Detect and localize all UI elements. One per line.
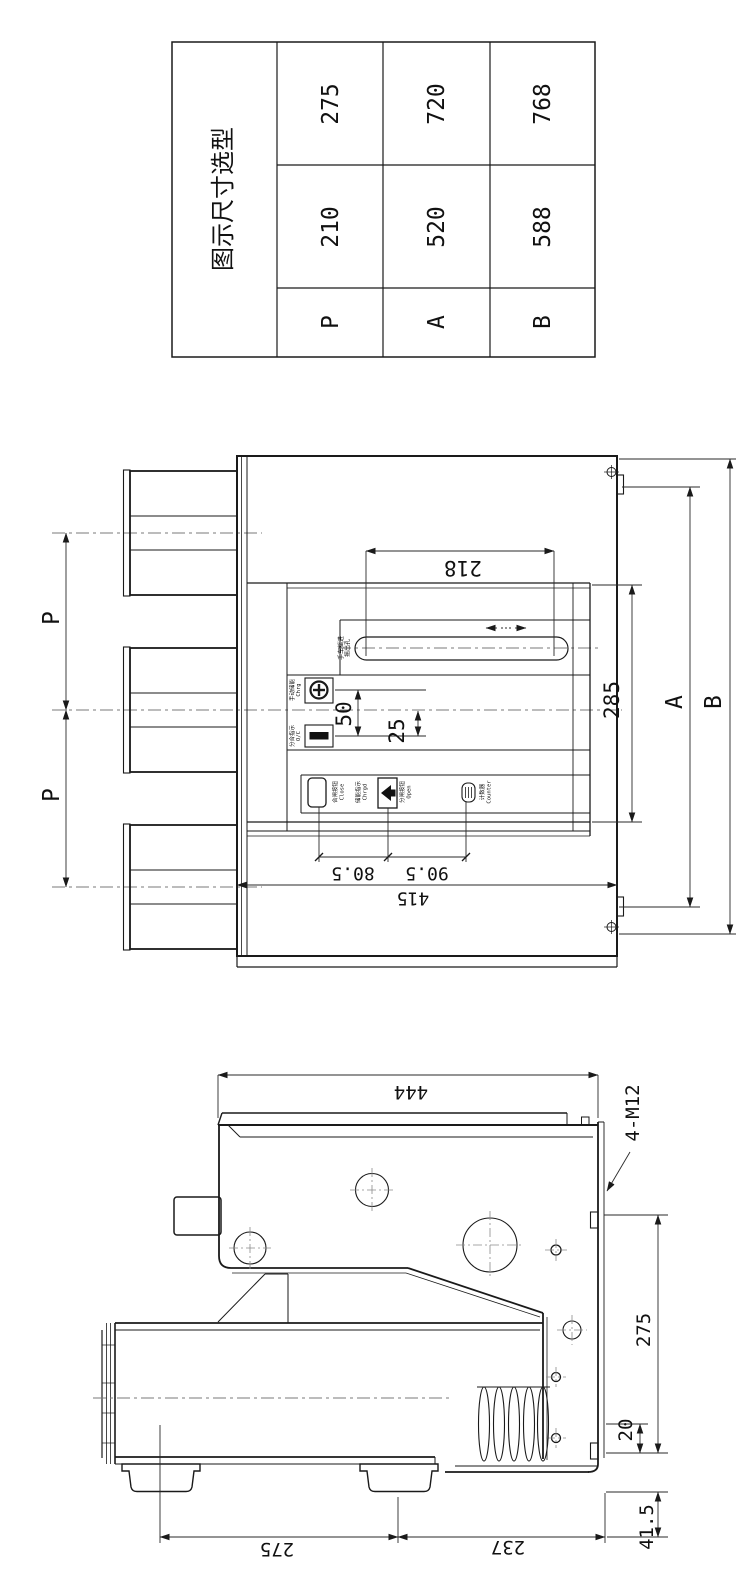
dimension-selection-table: 图示尺寸选型 275 720 768 210 520 588 P A B	[172, 42, 595, 357]
charged-label-line2: Chrgd	[363, 784, 369, 801]
mounting-plate	[445, 1117, 604, 1472]
table-cell: 588	[530, 206, 556, 248]
table-cell: 768	[530, 83, 556, 125]
table-cell: 520	[424, 206, 450, 248]
close-button	[308, 778, 326, 807]
dim-90-5: 90.5	[405, 863, 448, 884]
table-cell: P	[318, 315, 344, 329]
table-cell: A	[424, 315, 450, 329]
charge-label-line2: Chrg	[296, 683, 302, 696]
hole-left	[229, 1227, 271, 1269]
dim-41-5: 41.5	[636, 1504, 658, 1550]
hole-top	[350, 1168, 394, 1212]
bolt-hole-2	[546, 1367, 566, 1387]
side-view-dimensions: 444 4-M12 275 20 41.5 275 237	[160, 1075, 668, 1560]
table-cell: 275	[318, 83, 344, 125]
dim-285: 285	[600, 681, 624, 719]
open-btn-label-line1: 分闸按钮	[398, 781, 406, 804]
dim-218: 218	[444, 556, 482, 580]
dim-a: A	[662, 695, 688, 709]
drawing-canvas: 图示尺寸选型 275 720 768 210 520 588 P A B	[0, 0, 748, 1589]
close-btn-label-line2: Close	[340, 784, 346, 801]
counter-label-line1: 计数器	[478, 783, 486, 800]
close-btn-label-line1: 合闸按钮	[331, 781, 339, 804]
dim-50: 50	[332, 701, 356, 726]
dim-237: 237	[491, 1536, 525, 1558]
counter-label-line2: Counter	[487, 780, 493, 804]
interlock-block	[174, 1197, 221, 1235]
dim-b: B	[701, 695, 727, 709]
m12-bolt-head	[582, 1117, 590, 1125]
dim-444: 444	[394, 1081, 428, 1103]
dim-80-5: 80.5	[331, 863, 374, 884]
insulator-bellows	[477, 1387, 550, 1461]
open-button	[378, 778, 397, 808]
indicator-label-line2: O/C	[296, 731, 302, 741]
slot-label-line2: 摇出孔	[344, 639, 352, 657]
bolt-hole-1	[545, 1239, 567, 1261]
foot-1	[122, 1464, 200, 1492]
dim-20: 20	[615, 1419, 637, 1442]
bolt-hole-3	[546, 1428, 566, 1448]
plate-cleat-top	[591, 1212, 599, 1228]
dim-415: 415	[397, 888, 430, 909]
counter-window	[462, 783, 475, 802]
charge-handle-socket	[305, 678, 333, 703]
table-cell: B	[530, 315, 556, 329]
charged-label-line1: 储能指示	[354, 781, 362, 804]
dim-275-bottom: 275	[260, 1538, 294, 1560]
open-btn-label-line2: Open	[407, 785, 413, 798]
front-view-dimensions: P P 218 285 A B 50	[39, 459, 736, 934]
side-view: 444 4-M12 275 20 41.5 275 237	[93, 1075, 668, 1560]
engineering-drawing-sheet: 图示尺寸选型 275 720 768 210 520 588 P A B	[0, 0, 748, 1589]
hole-mid	[557, 1315, 587, 1345]
hole-large	[456, 1211, 524, 1279]
open-close-indicator	[305, 725, 333, 747]
arrow-glyph	[381, 785, 396, 801]
table-cell: 210	[318, 206, 344, 248]
indicator-label-line1: 分合指示	[288, 725, 296, 748]
dim-25: 25	[385, 718, 409, 743]
table-cell: 720	[424, 83, 450, 125]
dim-p-lower: P	[39, 788, 65, 802]
front-view: 手车摇进 摇出孔 手动储能 Chrg 分合指示 O/C 合闸按钮 Close 储…	[39, 456, 736, 967]
dim-4-m12: 4-M12	[622, 1084, 644, 1141]
foot-2	[360, 1464, 438, 1492]
charge-label-line1: 手动储能	[288, 679, 296, 702]
plate-cleat-bottom	[591, 1443, 599, 1459]
dim-p-upper: P	[39, 611, 65, 625]
table-title: 图示尺寸选型	[209, 127, 237, 271]
dim-275-right: 275	[633, 1313, 655, 1347]
